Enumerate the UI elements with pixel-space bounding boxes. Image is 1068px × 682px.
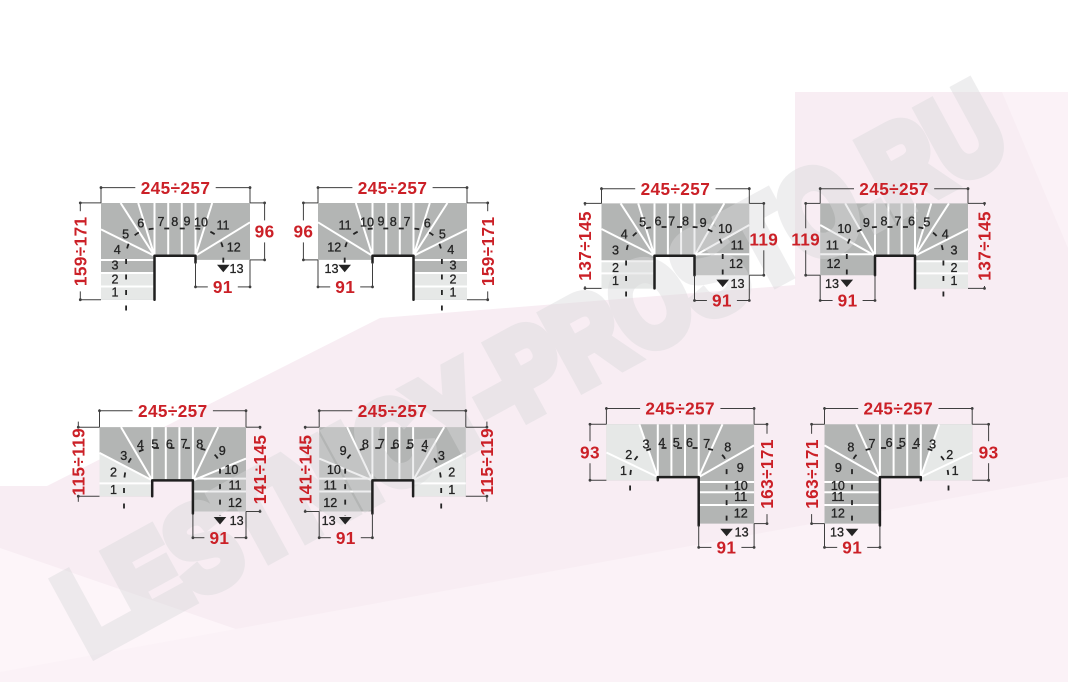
svg-text:3: 3 xyxy=(111,259,118,273)
svg-text:11: 11 xyxy=(731,238,744,252)
svg-text:1: 1 xyxy=(111,286,118,300)
svg-text:2: 2 xyxy=(111,272,118,286)
svg-text:245÷257: 245÷257 xyxy=(358,178,428,198)
svg-text:11: 11 xyxy=(831,490,844,504)
svg-text:9: 9 xyxy=(377,215,384,229)
svg-text:9: 9 xyxy=(700,216,707,230)
svg-text:3: 3 xyxy=(120,449,127,463)
svg-text:12: 12 xyxy=(323,496,337,510)
svg-text:245÷257: 245÷257 xyxy=(358,401,428,421)
svg-text:159÷171: 159÷171 xyxy=(71,216,91,286)
svg-text:5: 5 xyxy=(923,216,930,230)
svg-text:12: 12 xyxy=(831,507,845,521)
svg-text:5: 5 xyxy=(407,437,414,451)
svg-text:4: 4 xyxy=(621,227,628,241)
svg-text:12: 12 xyxy=(228,496,242,510)
svg-text:9: 9 xyxy=(340,444,347,458)
svg-text:93: 93 xyxy=(979,442,999,462)
svg-text:8: 8 xyxy=(724,440,731,454)
svg-text:93: 93 xyxy=(580,442,600,462)
svg-text:11: 11 xyxy=(734,490,747,504)
svg-text:6: 6 xyxy=(166,437,173,451)
svg-text:2: 2 xyxy=(946,448,953,462)
svg-text:7: 7 xyxy=(157,215,164,229)
svg-text:2: 2 xyxy=(110,465,117,479)
svg-text:8: 8 xyxy=(362,438,369,452)
svg-text:4: 4 xyxy=(913,436,920,450)
svg-text:12: 12 xyxy=(327,241,341,255)
svg-text:12: 12 xyxy=(729,257,743,271)
svg-text:9: 9 xyxy=(737,461,744,475)
svg-text:9: 9 xyxy=(835,461,842,475)
svg-text:2: 2 xyxy=(612,261,619,275)
svg-text:3: 3 xyxy=(449,259,456,273)
svg-text:11: 11 xyxy=(228,478,241,492)
svg-text:8: 8 xyxy=(171,215,178,229)
svg-text:1: 1 xyxy=(110,483,117,497)
svg-text:10: 10 xyxy=(718,222,732,236)
svg-text:91: 91 xyxy=(712,291,732,311)
svg-text:11: 11 xyxy=(338,218,351,232)
svg-text:8: 8 xyxy=(682,214,689,228)
svg-text:6: 6 xyxy=(686,436,693,450)
svg-text:119: 119 xyxy=(791,230,820,250)
svg-text:91: 91 xyxy=(716,538,736,558)
svg-text:4: 4 xyxy=(137,438,144,452)
svg-text:2: 2 xyxy=(448,465,455,479)
svg-text:10: 10 xyxy=(837,222,851,236)
svg-text:96: 96 xyxy=(293,222,313,242)
svg-text:245÷257: 245÷257 xyxy=(141,178,211,198)
svg-text:163÷171: 163÷171 xyxy=(757,439,777,509)
svg-text:12: 12 xyxy=(227,241,241,255)
svg-text:245÷257: 245÷257 xyxy=(138,401,208,421)
svg-text:3: 3 xyxy=(642,438,649,452)
svg-text:9: 9 xyxy=(863,216,870,230)
svg-text:6: 6 xyxy=(424,216,431,230)
svg-text:137÷145: 137÷145 xyxy=(575,211,595,281)
svg-text:96: 96 xyxy=(255,222,275,242)
svg-text:6: 6 xyxy=(392,437,399,451)
svg-text:6: 6 xyxy=(908,215,915,229)
svg-text:5: 5 xyxy=(673,436,680,450)
svg-text:7: 7 xyxy=(180,437,187,451)
svg-text:4: 4 xyxy=(447,243,454,257)
svg-text:3: 3 xyxy=(950,244,957,258)
svg-text:1: 1 xyxy=(952,464,959,478)
svg-text:2: 2 xyxy=(950,261,957,275)
svg-text:9: 9 xyxy=(219,444,226,458)
svg-text:163÷171: 163÷171 xyxy=(802,439,822,509)
svg-text:141÷145: 141÷145 xyxy=(250,435,270,505)
svg-text:2: 2 xyxy=(449,272,456,286)
svg-text:115÷119: 115÷119 xyxy=(68,428,88,496)
svg-text:10: 10 xyxy=(327,463,341,477)
svg-text:4: 4 xyxy=(421,438,428,452)
svg-text:159÷171: 159÷171 xyxy=(478,216,498,286)
svg-text:91: 91 xyxy=(335,277,355,297)
svg-text:1: 1 xyxy=(449,286,456,300)
svg-text:1: 1 xyxy=(448,483,455,497)
svg-text:141÷145: 141÷145 xyxy=(295,435,315,505)
svg-text:9: 9 xyxy=(183,215,190,229)
svg-text:3: 3 xyxy=(438,449,445,463)
svg-text:245÷257: 245÷257 xyxy=(859,179,929,199)
svg-text:7: 7 xyxy=(868,437,875,451)
svg-text:7: 7 xyxy=(668,214,675,228)
svg-text:6: 6 xyxy=(137,216,144,230)
svg-text:13: 13 xyxy=(230,514,244,528)
svg-text:5: 5 xyxy=(151,437,158,451)
svg-text:4: 4 xyxy=(658,436,665,450)
svg-text:7: 7 xyxy=(894,214,901,228)
svg-text:1: 1 xyxy=(950,274,957,288)
svg-text:10: 10 xyxy=(360,216,374,230)
svg-text:7: 7 xyxy=(703,437,710,451)
svg-text:12: 12 xyxy=(734,507,748,521)
svg-text:7: 7 xyxy=(403,215,410,229)
svg-text:13: 13 xyxy=(825,277,839,291)
svg-text:1: 1 xyxy=(612,274,619,288)
svg-text:245÷257: 245÷257 xyxy=(645,399,715,419)
svg-text:8: 8 xyxy=(880,214,887,228)
svg-text:245÷257: 245÷257 xyxy=(641,179,711,199)
svg-text:12: 12 xyxy=(826,257,840,271)
svg-text:5: 5 xyxy=(899,436,906,450)
svg-text:11: 11 xyxy=(826,238,839,252)
svg-text:119: 119 xyxy=(749,230,778,250)
svg-text:137÷145: 137÷145 xyxy=(975,211,995,281)
svg-text:91: 91 xyxy=(336,528,356,548)
svg-text:5: 5 xyxy=(122,227,129,241)
svg-text:5: 5 xyxy=(639,216,646,230)
svg-text:91: 91 xyxy=(209,528,229,548)
svg-text:6: 6 xyxy=(886,436,893,450)
svg-text:91: 91 xyxy=(842,538,862,558)
svg-text:3: 3 xyxy=(929,438,936,452)
svg-text:245÷257: 245÷257 xyxy=(864,399,934,419)
svg-text:11: 11 xyxy=(324,478,337,492)
svg-text:5: 5 xyxy=(439,227,446,241)
svg-text:6: 6 xyxy=(654,215,661,229)
svg-text:13: 13 xyxy=(322,514,336,528)
svg-text:7: 7 xyxy=(378,437,385,451)
svg-text:11: 11 xyxy=(216,218,229,232)
svg-text:13: 13 xyxy=(324,262,338,276)
svg-text:1: 1 xyxy=(620,464,627,478)
svg-text:2: 2 xyxy=(625,448,632,462)
svg-text:10: 10 xyxy=(224,463,238,477)
svg-text:91: 91 xyxy=(838,291,858,311)
svg-text:13: 13 xyxy=(229,262,243,276)
svg-text:91: 91 xyxy=(213,277,233,297)
svg-text:4: 4 xyxy=(942,227,949,241)
svg-text:115÷119: 115÷119 xyxy=(477,428,497,496)
svg-text:8: 8 xyxy=(847,440,854,454)
svg-text:13: 13 xyxy=(735,525,749,539)
svg-text:10: 10 xyxy=(194,216,208,230)
svg-text:8: 8 xyxy=(196,438,203,452)
svg-text:4: 4 xyxy=(114,243,121,257)
svg-text:8: 8 xyxy=(390,215,397,229)
svg-text:3: 3 xyxy=(612,244,619,258)
svg-text:13: 13 xyxy=(730,277,744,291)
